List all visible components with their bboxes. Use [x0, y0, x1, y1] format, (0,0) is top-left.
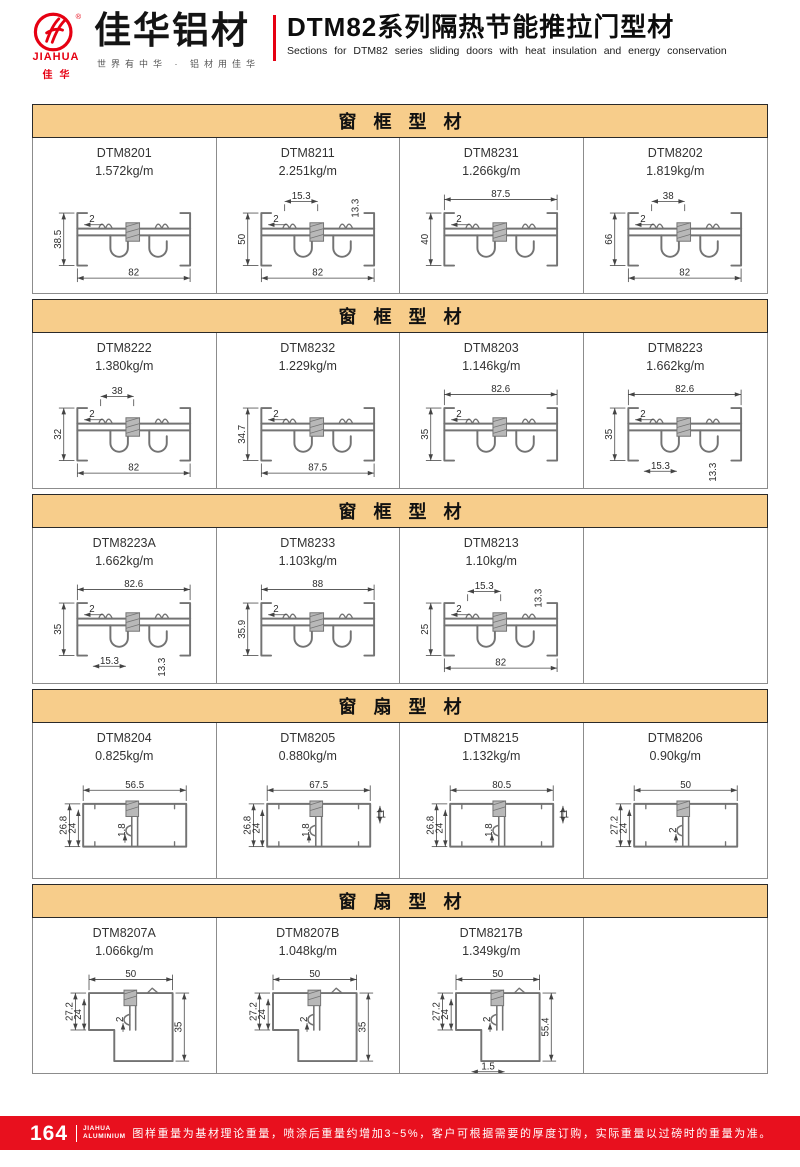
svg-text:15.3: 15.3	[292, 191, 311, 202]
svg-text:1.8: 1.8	[117, 824, 128, 838]
profile-weight: 0.825kg/m	[95, 747, 153, 765]
profile-weight: 1.349kg/m	[462, 942, 520, 960]
profile-code: DTM8232	[280, 339, 335, 357]
profile-drawing: 8835.92	[220, 570, 396, 683]
profile-code: DTM8222	[97, 339, 152, 357]
footer-divider	[76, 1125, 77, 1142]
profile-code: DTM8203	[464, 339, 519, 357]
profile-cell: DTM82151.132kg/m80.526.8241.811	[400, 723, 584, 878]
section-title: 窗框型材	[32, 494, 768, 528]
svg-text:13.3: 13.3	[350, 199, 361, 218]
empty-cell	[584, 528, 768, 683]
svg-text:11: 11	[559, 810, 569, 821]
svg-text:35: 35	[174, 1022, 185, 1033]
profile-weight: 1.103kg/m	[279, 552, 337, 570]
profile-weight: 1.266kg/m	[462, 162, 520, 180]
svg-text:1.5: 1.5	[482, 1062, 496, 1073]
svg-text:2: 2	[299, 1017, 310, 1022]
profile-weight: 1.380kg/m	[95, 357, 153, 375]
profile-section: 窗框型材DTM8223A1.662kg/m82.635215.313.3DTM8…	[32, 494, 768, 684]
svg-text:56.5: 56.5	[125, 780, 144, 791]
svg-text:24: 24	[257, 1009, 268, 1020]
profile-drawing: 82.635215.313.3	[36, 570, 212, 683]
svg-text:1.8: 1.8	[301, 824, 312, 838]
svg-text:15.3: 15.3	[100, 656, 119, 667]
svg-text:13.3: 13.3	[708, 463, 719, 482]
profile-cell: DTM82112.251kg/m15.313.350282	[217, 138, 401, 293]
profile-drawing: 15.313.325282	[403, 570, 579, 683]
svg-text:24: 24	[68, 822, 79, 833]
svg-text:38: 38	[663, 191, 674, 202]
profile-code: DTM8223A	[93, 534, 156, 552]
profile-drawing: 34.7287.5	[220, 375, 396, 488]
profile-cell: DTM82040.825kg/m56.526.8241.8	[33, 723, 217, 878]
svg-text:82: 82	[312, 268, 323, 279]
profile-cell: DTM82321.229kg/m34.7287.5	[217, 333, 401, 488]
brand-en-label: JIAHUA	[26, 52, 86, 63]
svg-text:35: 35	[604, 429, 615, 440]
profile-cell: DTM82060.90kg/m5027.2242	[584, 723, 768, 878]
profile-drawing: 56.526.8241.8	[36, 765, 212, 878]
svg-text:87.5: 87.5	[308, 463, 327, 474]
profile-code: DTM8223	[648, 339, 703, 357]
svg-text:24: 24	[251, 822, 262, 833]
section-row: DTM82221.380kg/m3832282DTM82321.229kg/m3…	[32, 333, 768, 489]
profile-weight: 1.066kg/m	[95, 942, 153, 960]
profile-section: 窗扇型材DTM8207A1.066kg/m5027.224235DTM8207B…	[32, 884, 768, 1074]
brand-slogan: 世界有中华 · 铝材用佳华	[97, 57, 260, 70]
svg-text:35: 35	[53, 624, 64, 635]
svg-text:50: 50	[309, 969, 320, 980]
profile-drawing: 5027.224255.41.5	[403, 960, 579, 1073]
profile-weight: 1.229kg/m	[279, 357, 337, 375]
profile-code: DTM8213	[464, 534, 519, 552]
svg-text:24: 24	[619, 822, 630, 833]
profile-weight: 1.819kg/m	[646, 162, 704, 180]
profile-cell: DTM82231.662kg/m82.635215.313.3	[584, 333, 768, 488]
profile-cell: DTM82031.146kg/m82.6352	[400, 333, 584, 488]
profile-table: 窗框型材DTM82011.572kg/m38.5282DTM82112.251k…	[32, 104, 768, 1079]
svg-text:2: 2	[115, 1017, 126, 1022]
title-block: DTM82系列隔热节能推拉门型材 Sections for DTM82 seri…	[287, 10, 727, 57]
svg-text:50: 50	[681, 780, 692, 791]
profile-drawing: 3832282	[36, 375, 212, 488]
svg-text:87.5: 87.5	[492, 189, 511, 200]
catalog-page: ® JIAHUA 佳华 佳华铝材 世界有中华 · 铝材用佳华 DTM82系列隔热…	[0, 0, 800, 1167]
profile-drawing: 82.635215.313.3	[587, 375, 763, 488]
svg-text:32: 32	[53, 429, 64, 440]
svg-text:38: 38	[112, 386, 123, 397]
profile-cell: DTM82021.819kg/m3866282	[584, 138, 768, 293]
profile-weight: 1.146kg/m	[462, 357, 520, 375]
svg-text:24: 24	[440, 1009, 451, 1020]
profile-weight: 1.10kg/m	[466, 552, 517, 570]
svg-text:2: 2	[482, 1017, 493, 1022]
profile-weight: 2.251kg/m	[279, 162, 337, 180]
svg-text:50: 50	[237, 234, 248, 245]
svg-text:1.8: 1.8	[484, 824, 495, 838]
svg-text:82.6: 82.6	[676, 384, 695, 395]
profile-drawing: 15.313.350282	[220, 180, 396, 293]
profile-code: DTM8204	[97, 729, 152, 747]
svg-text:25: 25	[420, 624, 431, 635]
svg-text:15.3: 15.3	[651, 461, 670, 472]
footer-brand-line1: JIAHUA	[83, 1125, 126, 1133]
section-title: 窗框型材	[32, 104, 768, 138]
svg-text:82: 82	[129, 463, 140, 474]
svg-text:34.7: 34.7	[237, 425, 248, 444]
brand-name: 佳华铝材	[94, 10, 260, 53]
svg-text:82: 82	[129, 268, 140, 279]
svg-text:2: 2	[668, 828, 679, 833]
brand-short-label: 佳华	[26, 66, 86, 81]
profile-code: DTM8211	[281, 144, 335, 162]
svg-text:50: 50	[126, 969, 137, 980]
profile-weight: 1.662kg/m	[646, 357, 704, 375]
page-footer: 164 JIAHUA ALUMINIUM 图样重量为基材理论重量，喷涂后重量约增…	[0, 1116, 800, 1150]
svg-text:35.9: 35.9	[237, 620, 248, 639]
header-divider	[273, 15, 276, 61]
profile-cell: DTM82311.266kg/m87.5402	[400, 138, 584, 293]
page-number: 164	[30, 1123, 68, 1144]
jiahua-logo: ® JIAHUA 佳华	[26, 10, 86, 81]
page-subtitle: Sections for DTM82 series sliding doors …	[287, 45, 727, 57]
registered-mark: ®	[76, 12, 82, 21]
section-title: 窗框型材	[32, 299, 768, 333]
page-title: DTM82系列隔热节能推拉门型材	[287, 12, 727, 43]
profile-cell: DTM82011.572kg/m38.5282	[33, 138, 217, 293]
profile-weight: 1.132kg/m	[462, 747, 520, 765]
profile-drawing: 5027.224235	[220, 960, 396, 1073]
profile-section: 窗框型材DTM82221.380kg/m3832282DTM82321.229k…	[32, 299, 768, 489]
profile-drawing: 5027.2242	[587, 765, 763, 878]
svg-text:38.5: 38.5	[53, 230, 64, 249]
svg-text:55.4: 55.4	[541, 1017, 552, 1036]
section-row: DTM82040.825kg/m56.526.8241.8DTM82050.88…	[32, 723, 768, 879]
profile-drawing: 67.526.8241.811	[220, 765, 396, 878]
svg-text:40: 40	[420, 234, 431, 245]
svg-text:24: 24	[435, 822, 446, 833]
profile-cell: DTM82050.880kg/m67.526.8241.811	[217, 723, 401, 878]
footer-note: 图样重量为基材理论重量，喷涂后重量约增加3~5%，客户可根据需要的厚度订购，实际…	[132, 1125, 772, 1141]
profile-code: DTM8206	[648, 729, 703, 747]
empty-cell	[584, 918, 768, 1073]
profile-weight: 1.048kg/m	[279, 942, 337, 960]
svg-text:15.3: 15.3	[475, 581, 494, 592]
footer-brand: JIAHUA ALUMINIUM	[83, 1125, 126, 1142]
profile-cell: DTM82331.103kg/m8835.92	[217, 528, 401, 683]
profile-code: DTM8201	[97, 144, 152, 162]
svg-text:67.5: 67.5	[309, 780, 328, 791]
profile-code: DTM8233	[280, 534, 335, 552]
svg-text:13.3: 13.3	[157, 658, 168, 677]
section-title: 窗扇型材	[32, 689, 768, 723]
profile-weight: 1.572kg/m	[95, 162, 153, 180]
profile-drawing: 87.5402	[403, 180, 579, 293]
profile-section: 窗扇型材DTM82040.825kg/m56.526.8241.8DTM8205…	[32, 689, 768, 879]
profile-cell: DTM8207B1.048kg/m5027.224235	[217, 918, 401, 1073]
profile-drawing: 80.526.8241.811	[403, 765, 579, 878]
profile-drawing: 3866282	[587, 180, 763, 293]
jiahua-logo-icon: ®	[27, 10, 85, 54]
svg-text:82: 82	[680, 268, 691, 279]
profile-drawing: 38.5282	[36, 180, 212, 293]
svg-text:11: 11	[376, 810, 386, 821]
profile-weight: 0.90kg/m	[650, 747, 701, 765]
profile-code: DTM8231	[464, 144, 519, 162]
svg-text:35: 35	[420, 429, 431, 440]
svg-text:82: 82	[496, 658, 507, 669]
profile-cell: DTM82221.380kg/m3832282	[33, 333, 217, 488]
profile-code: DTM8215	[464, 729, 519, 747]
profile-cell: DTM8223A1.662kg/m82.635215.313.3	[33, 528, 217, 683]
profile-code: DTM8205	[280, 729, 335, 747]
svg-text:88: 88	[312, 579, 323, 590]
profile-cell: DTM8217B1.349kg/m5027.224255.41.5	[400, 918, 584, 1073]
svg-text:66: 66	[604, 234, 615, 245]
brand-block: 佳华铝材 世界有中华 · 铝材用佳华	[94, 10, 260, 70]
section-row: DTM82011.572kg/m38.5282DTM82112.251kg/m1…	[32, 138, 768, 294]
section-row: DTM8207A1.066kg/m5027.224235DTM8207B1.04…	[32, 918, 768, 1074]
profile-drawing: 82.6352	[403, 375, 579, 488]
profile-weight: 0.880kg/m	[279, 747, 337, 765]
profile-code: DTM8202	[648, 144, 703, 162]
footer-brand-line2: ALUMINIUM	[83, 1133, 126, 1141]
page-header: ® JIAHUA 佳华 佳华铝材 世界有中华 · 铝材用佳华 DTM82系列隔热…	[0, 0, 800, 81]
svg-text:80.5: 80.5	[492, 780, 511, 791]
profile-weight: 1.662kg/m	[95, 552, 153, 570]
profile-cell: DTM82131.10kg/m15.313.325282	[400, 528, 584, 683]
svg-text:82.6: 82.6	[492, 384, 511, 395]
svg-text:13.3: 13.3	[534, 589, 545, 608]
profile-section: 窗框型材DTM82011.572kg/m38.5282DTM82112.251k…	[32, 104, 768, 294]
profile-code: DTM8217B	[460, 924, 523, 942]
svg-text:24: 24	[73, 1009, 84, 1020]
svg-text:35: 35	[357, 1022, 368, 1033]
svg-text:50: 50	[493, 969, 504, 980]
profile-code: DTM8207A	[93, 924, 156, 942]
profile-code: DTM8207B	[276, 924, 339, 942]
svg-text:82.6: 82.6	[125, 579, 144, 590]
section-title: 窗扇型材	[32, 884, 768, 918]
profile-drawing: 5027.224235	[36, 960, 212, 1073]
profile-cell: DTM8207A1.066kg/m5027.224235	[33, 918, 217, 1073]
section-row: DTM8223A1.662kg/m82.635215.313.3DTM82331…	[32, 528, 768, 684]
